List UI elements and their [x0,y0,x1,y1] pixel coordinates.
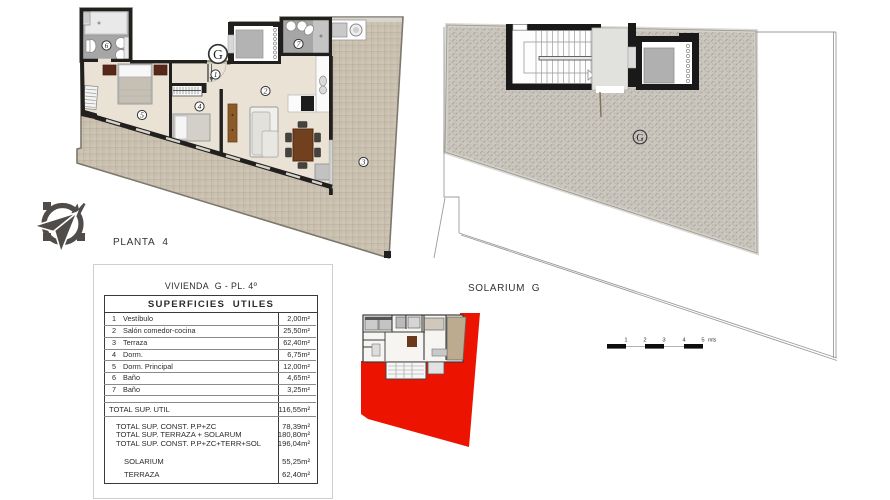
svg-text:5: 5 [140,111,144,120]
svg-text:SOLARIUM G: SOLARIUM G [468,283,540,294]
svg-text:1: 1 [624,338,627,344]
svg-text:1: 1 [214,70,218,79]
svg-text:2: 2 [264,87,268,96]
svg-text:G: G [213,47,223,62]
svg-text:4: 4 [198,102,202,111]
svg-text:6: 6 [105,41,109,50]
svg-text:5: 5 [701,338,704,344]
svg-text:3: 3 [361,158,366,167]
svg-text:3: 3 [662,338,665,344]
svg-text:mts: mts [708,338,717,344]
svg-text:G: G [636,133,643,144]
svg-text:2: 2 [643,338,646,344]
svg-text:PLANTA 4: PLANTA 4 [113,237,169,248]
svg-text:4: 4 [682,338,686,344]
